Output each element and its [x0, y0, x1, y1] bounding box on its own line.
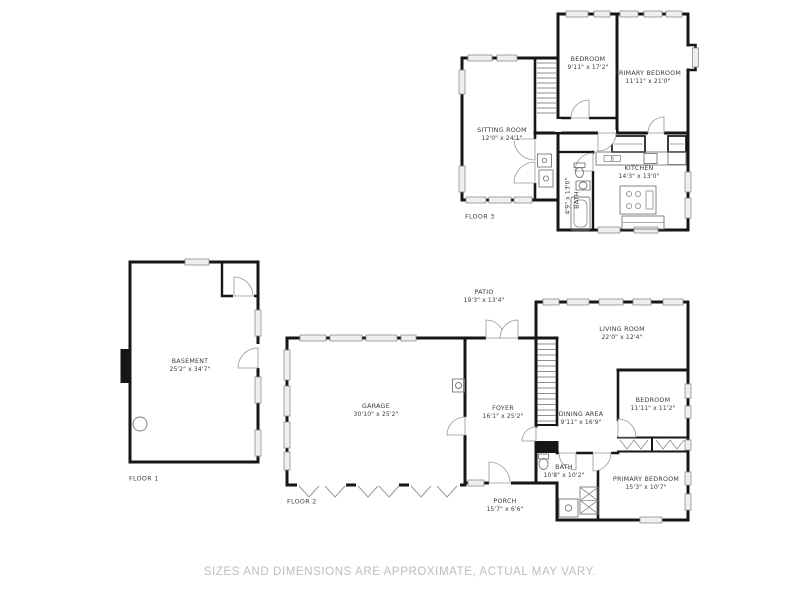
- room-label-basement: BASEMENT 25'2" x 34'7": [169, 358, 210, 373]
- floor-3-fixtures: [538, 152, 687, 230]
- room-label-bedroom-2: BEDROOM 11'11" x 11'2": [630, 397, 675, 412]
- room-label-foyer: FOYER 16'1" x 25'2": [482, 405, 523, 420]
- basement-doors: [234, 277, 258, 368]
- floorplan-page: BASEMENT 25'2" x 34'7" FLOOR 1 GARAGE 30…: [0, 0, 800, 600]
- room-label-living-room: LIVING ROOM 22'0" x 12'4": [599, 326, 645, 341]
- room-label-bath-3-name: BATH: [574, 191, 581, 209]
- room-label-sitting-room: SITTING ROOM 12'0" x 24'1": [477, 127, 527, 142]
- room-label-bath-2: BATH 10'8" x 10'2": [543, 464, 584, 479]
- disclaimer-text: SIZES AND DIMENSIONS ARE APPROXIMATE, AC…: [0, 566, 800, 578]
- floor-3-label: FLOOR 3: [465, 214, 495, 221]
- floor-2-label: FLOOR 2: [287, 499, 317, 506]
- basement-wall-notch: [121, 349, 132, 383]
- washer-dryer-icon: [580, 488, 598, 513]
- stairs-floor-3: [537, 63, 556, 113]
- room-label-porch: PORCH 15'7" x 6'6": [486, 498, 523, 513]
- room-label-garage: GARAGE 30'10" x 25'2": [353, 403, 398, 418]
- room-label-bedroom-3: BEDROOM 9'11" x 17'2": [567, 56, 608, 71]
- room-label-primary-bedroom-3: PRIMARY BEDROOM 11'11" x 21'0": [615, 70, 681, 85]
- room-label-bath-3-dims: 4'9" x 13'0": [563, 177, 571, 214]
- floorplan-drawing: [0, 0, 800, 600]
- floor-2-fixtures: [453, 379, 599, 517]
- chimney-block: [535, 441, 559, 453]
- stairs-floor-2: [538, 344, 556, 421]
- basement-column-icon: [133, 417, 147, 431]
- floor-1-label: FLOOR 1: [129, 476, 159, 483]
- room-label-kitchen: KITCHEN 14'3" x 13'0": [618, 165, 659, 180]
- room-label-primary-bedroom-2: PRIMARY BEDROOM 15'3" x 10'7": [613, 476, 679, 491]
- room-label-dining-area: DINING AREA 9'11" x 16'9": [559, 411, 604, 426]
- room-label-patio: PATIO 19'3" x 13'4": [463, 289, 504, 304]
